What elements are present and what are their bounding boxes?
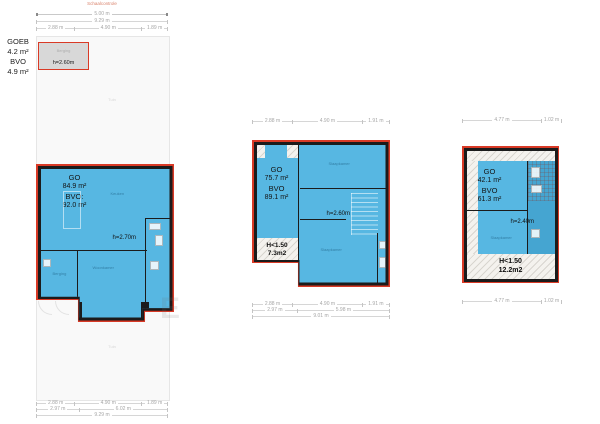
dimension-row-sf-top: 4.77 m 1.02 m [462,117,559,124]
outbuilding-bvo-label: BVO [1,57,35,67]
dimension-row-ff-total: 9.01 m [252,313,390,320]
dim-label: 2.88 m [263,118,282,125]
outbuilding-goeb-area: 4.2 m² [1,47,35,57]
toilet [379,241,386,249]
bvo-area: 61.3 m² [469,195,511,205]
low-headroom-height: H<1.50 [487,257,535,266]
outbuilding-bvo-area: 4.9 m² [1,67,35,77]
first-floor-plan: GO 75.7 m² BVO 89.1 m² H<1.50 7.3m2 h=2.… [252,140,390,287]
ground-floor-plan: GO 84.9 m² BVO: 92.0 m² Keuken Woonkamer… [36,164,174,322]
interior-wall [298,145,300,264]
room-label-storage: Berging [53,271,67,276]
wall-block [74,302,82,318]
bathroom-shower [155,235,163,246]
low-headroom-height: H<1.50 [257,242,298,250]
dim-label: 9.29 m [92,18,111,25]
low-headroom-label: H<1.50 12.2m2 [487,257,535,275]
interior-wall [467,210,527,212]
dim-label: 2.88 m [46,25,65,32]
outbuilding-goeb-label: GOEB [1,37,35,47]
ceiling-height-label: h=2.60m [327,211,351,217]
room-label-bedroom-bottom: Slaapkamer [321,247,342,252]
bathroom-sink [379,257,386,268]
dormer-area [265,145,287,159]
go-area: 42.1 m² [469,176,511,186]
dim-label: 1.91 m [366,118,385,125]
interior-wall [77,250,79,318]
dimension-row-sf-bottom: 4.77 m 1.02 m [462,298,559,305]
low-headroom-area: 12.2m2 [487,266,535,275]
go-area: 75.7 m² [257,174,297,184]
dimension-row-total-top: 9.29 m [36,18,168,25]
dimension-row-segments-top: 2.88 m 4.90 m 1.89 m [36,25,168,32]
dim-label: 9.01 m [311,313,330,320]
dim-label: 4.77 m [492,117,511,124]
bathroom-sink [531,185,542,193]
low-headroom-area: 7.3m2 [257,250,298,258]
room-label-living: Woonkamer [93,265,115,270]
garden-label-back: Tuin [80,344,144,349]
shed-room-label: Berging [39,48,88,53]
ceiling-height-label: h=2.70m [113,235,137,241]
staircase [351,193,378,235]
interior-wall [145,218,170,220]
kitchen-counter [63,191,81,229]
toilet [150,261,159,270]
garden-label-front: Tuin [80,97,144,102]
dim-label: 4.90 m [318,118,337,125]
room-label-bedroom-top: Slaapkamer [329,161,350,166]
low-headroom-hatch [467,151,555,161]
ceiling-height-label: h=2.40m [511,219,535,225]
bathroom-shower [531,167,540,178]
bvo-label: BVO [469,186,511,196]
interior-wall [41,250,147,252]
dimension-row-scale: 5.00 m [36,11,168,18]
room-label-kitchen: Keuken [111,191,125,196]
second-floor-summary: GO 42.1 m² BVO 61.3 m² [469,167,511,205]
interior-wall [377,233,378,283]
low-headroom-label: H<1.50 7.3m2 [257,242,298,258]
watermark-letter: E [160,292,180,326]
first-floor-summary: GO 75.7 m² BVO 89.1 m² [257,165,297,203]
washing-machine [43,259,51,267]
bvo-label: BVO [257,184,297,194]
dimension-row-ff-top: 2.88 m 4.90 m 1.91 m [252,118,390,125]
dim-label: 5.00 m [92,11,111,18]
dim-label: 1.02 m [542,298,561,305]
scale-check-label: Schaalcontrole [36,1,168,6]
floorplan-sheet: Schaalcontrole 5.00 m 9.29 m 2.88 m 4.90… [0,0,600,424]
plan-floor-area: GO 84.9 m² BVO: 92.0 m² Keuken Woonkamer… [41,169,170,318]
interior-wall [300,188,386,190]
go-label: GO [469,167,511,177]
plan-floor-area: GO 42.1 m² BVO 61.3 m² h=2.40m Slaapkame… [467,151,555,279]
second-floor-plan: GO 42.1 m² BVO 61.3 m² h=2.40m Slaapkame… [462,146,559,283]
shed-height-label: h=2.60m [39,60,88,66]
go-label: GO [257,165,297,175]
go-label: GO [47,173,103,183]
dim-label: 9.29 m [92,412,111,419]
interior-wall [527,161,529,254]
shed-plan: Berging h=2.60m [38,42,89,70]
outbuilding-summary: GOEB 4.2 m² BVO 4.9 m² [1,37,35,77]
dimension-row-total: 9.29 m [36,412,168,419]
bathroom-sink [149,223,161,230]
toilet [531,229,540,238]
dim-label: 4.77 m [492,298,511,305]
interior-wall [300,219,346,221]
dim-label: 1.02 m [542,117,561,124]
dim-label: 4.90 m [99,25,118,32]
bvo-area: 89.1 m² [257,193,297,203]
dim-label: 1.89 m [145,25,164,32]
room-label-bedroom: Slaapkamer [491,235,512,240]
